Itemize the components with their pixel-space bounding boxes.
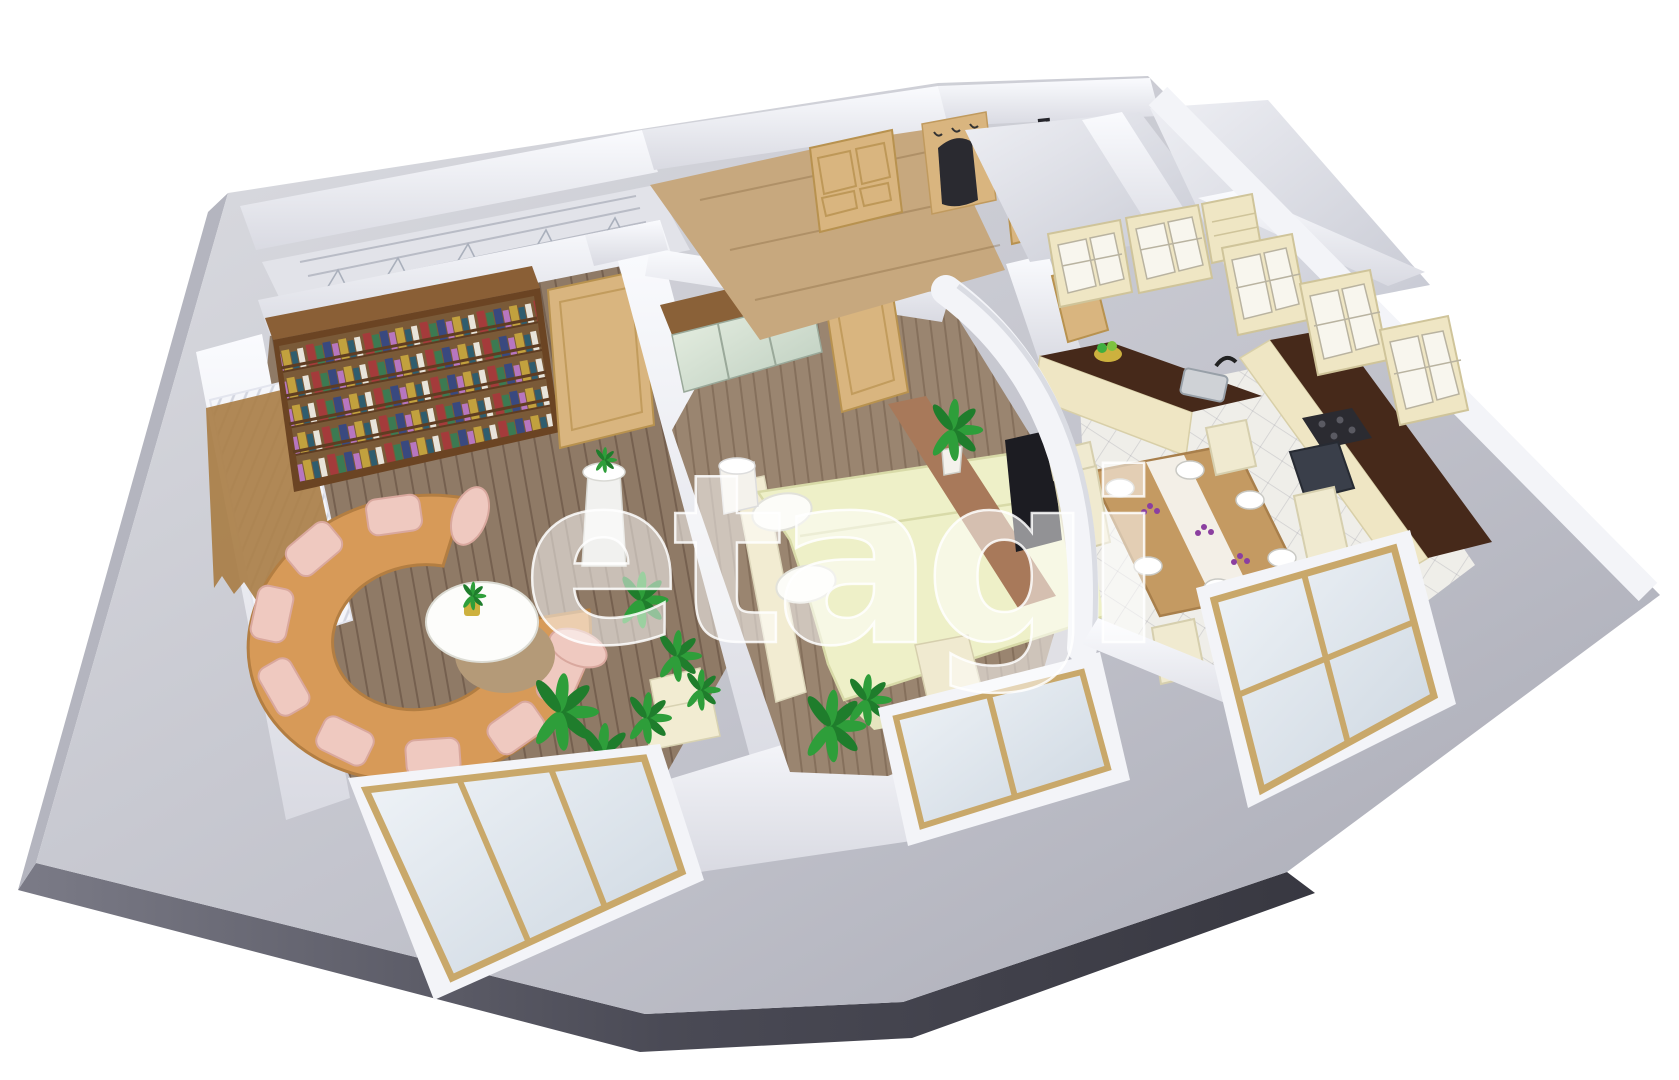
scene-canvas: 7 — [0, 0, 1679, 1080]
hanging-coat — [938, 138, 978, 206]
upper-cabinet — [1222, 234, 1308, 335]
upper-cabinet — [1048, 220, 1132, 307]
watermark-text: etagi — [522, 423, 1154, 698]
floorplan-3d-render: 7 — [0, 0, 1679, 1080]
upper-cabinet — [1126, 205, 1212, 293]
watermark: etagi — [522, 423, 1154, 698]
